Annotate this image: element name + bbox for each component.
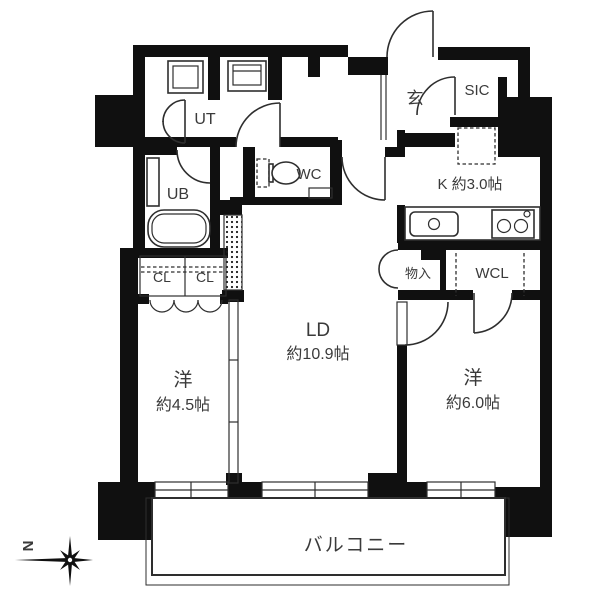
label-west2: 洋 (463, 367, 482, 389)
label-ld-size: 約10.9帖 (286, 345, 349, 363)
label-closet1: CL (153, 269, 171, 285)
bathtub-icon (148, 210, 210, 247)
label-kitchen: K 約3.0帖 (437, 176, 502, 193)
toilet-icon (257, 159, 300, 187)
genkan-step-line (381, 75, 386, 140)
ub-door (177, 150, 210, 183)
closet-accordion-doors (150, 300, 222, 312)
wcl-door (474, 293, 512, 333)
label-wcl: WCL (475, 265, 508, 282)
label-storage: 物入 (405, 266, 431, 281)
label-closet2: CL (196, 269, 214, 285)
label-ub: UB (167, 186, 189, 203)
floorplan-drawing: N UT 玄 SIC WC UB K 約3.0帖 CL CL 物入 WCL LD… (0, 0, 600, 600)
wc-shelf (309, 188, 332, 198)
label-wc: WC (297, 166, 322, 183)
ut-closet-doors (163, 100, 185, 143)
window-ld (262, 482, 368, 498)
ut-door (236, 103, 280, 147)
label-ut: UT (194, 111, 216, 128)
kitchen-counter-icon (405, 207, 540, 240)
refrigerator-space (458, 128, 495, 164)
vanity-icon (147, 158, 159, 206)
washing-machine-icon (168, 61, 203, 93)
hall-ld-door (342, 157, 385, 200)
label-ld: LD (306, 320, 330, 341)
label-sic: SIC (464, 82, 489, 99)
compass-north-label: N (20, 541, 37, 552)
label-genkan: 玄 (407, 89, 424, 108)
label-west1: 洋 (173, 369, 192, 391)
utility-cabinet-icon (228, 61, 266, 91)
label-west1-size: 約4.5帖 (156, 396, 210, 414)
sliding-partition (229, 300, 238, 483)
windows-layer (155, 482, 495, 498)
label-balcony: バルコニー (304, 535, 409, 556)
floorplan-canvas: N UT 玄 SIC WC UB K 約3.0帖 CL CL 物入 WCL LD… (0, 0, 600, 600)
pipe-space (224, 215, 242, 290)
compass-rose: N (15, 536, 93, 586)
window-west2 (427, 482, 495, 498)
storage-doors (379, 250, 398, 288)
entrance-door (387, 11, 433, 57)
window-west1 (155, 482, 228, 498)
west2-door (397, 302, 448, 345)
label-west2-size: 約6.0帖 (446, 394, 500, 412)
stove-icon (492, 210, 534, 238)
